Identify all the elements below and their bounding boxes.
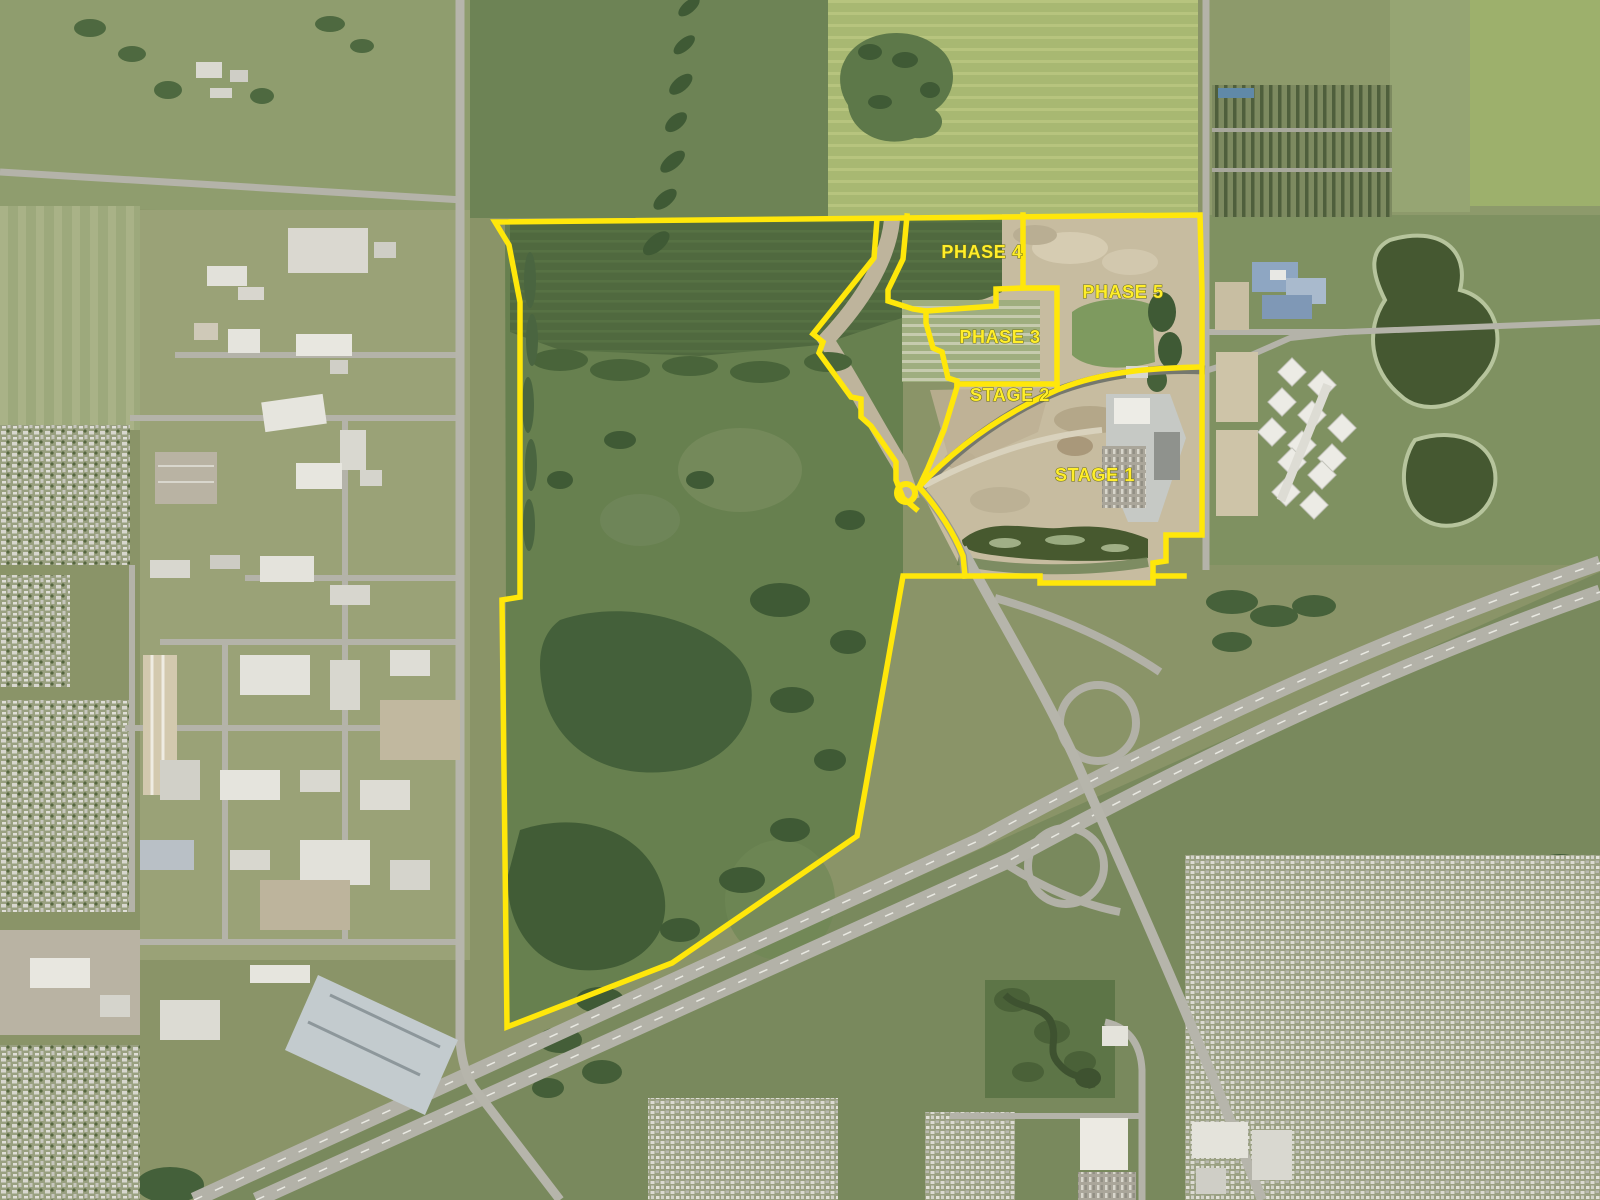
aerial-basemap: PHASE 4 PHASE 5 PHASE 3 STAGE 2 STAGE 1 bbox=[0, 0, 1600, 1200]
stage-1-label: STAGE 1 bbox=[1055, 465, 1135, 485]
development-plan-map: PHASE 4 PHASE 5 PHASE 3 STAGE 2 STAGE 1 bbox=[0, 0, 1600, 1200]
stage-2-label: STAGE 2 bbox=[970, 385, 1050, 405]
phase-5-label: PHASE 5 bbox=[1082, 282, 1163, 302]
phase-3-label: PHASE 3 bbox=[959, 327, 1040, 347]
phase-4-label: PHASE 4 bbox=[941, 242, 1022, 262]
